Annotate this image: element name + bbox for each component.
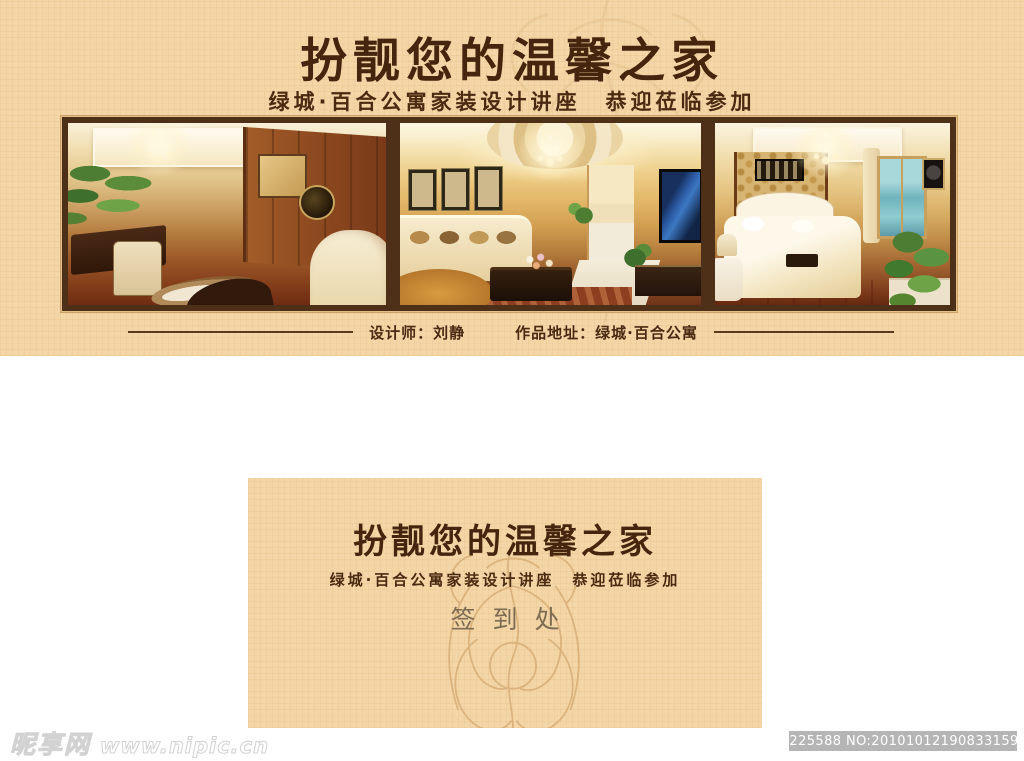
picture-frame xyxy=(475,167,502,211)
potted-plant xyxy=(872,225,950,305)
credit-location: 作品地址：绿城·百合公寓 xyxy=(515,322,698,343)
rule-left xyxy=(128,331,353,333)
banner-title: 扮靓您的温馨之家 xyxy=(0,22,1024,91)
chandelier-icon xyxy=(811,132,841,166)
floor-lamp-shade xyxy=(310,230,386,305)
banner-subtitle: 绿城·百合公寓家装设计讲座 恭迎莅临参加 xyxy=(0,86,1024,116)
desk-chair xyxy=(113,241,163,296)
flower-arrangement xyxy=(517,250,559,274)
photo-study-room xyxy=(68,123,386,305)
decorative-plate xyxy=(299,185,335,220)
promo-banner: 扮靓您的温馨之家 绿城·百合公寓家装设计讲座 恭迎莅临参加 xyxy=(0,0,1024,356)
photo-strip xyxy=(62,117,956,311)
signin-label: 签到处 xyxy=(248,600,762,636)
coffee-table xyxy=(490,270,571,301)
card-title: 扮靓您的温馨之家 xyxy=(248,514,762,563)
pillows xyxy=(739,212,828,236)
potted-plant xyxy=(566,199,602,232)
image-id-badge: ID:2225588 NO:20101012190833159000 xyxy=(789,731,1017,751)
canvas: 扮靓您的温馨之家 绿城·百合公寓家装设计讲座 恭迎莅临参加 xyxy=(0,0,1024,758)
nightstand xyxy=(715,258,743,302)
chandelier-icon xyxy=(144,130,174,164)
television-screen xyxy=(659,169,701,244)
credit-line: 设计师：刘静 作品地址：绿城·百合公寓 xyxy=(128,323,894,341)
photo-bedroom xyxy=(715,123,950,305)
nipic-url: www.nipic.cn xyxy=(100,734,269,758)
credit-designer: 设计师：刘静 xyxy=(369,322,465,343)
photo-living-room xyxy=(400,123,701,305)
signin-card: 扮靓您的温馨之家 绿城·百合公寓家装设计讲座 恭迎莅临参加 签到处 xyxy=(248,478,762,728)
sofa-cushions xyxy=(406,225,520,250)
wall-painting xyxy=(258,154,307,198)
picture-frame xyxy=(442,169,469,211)
breakfast-tray xyxy=(786,254,819,267)
rule-right xyxy=(714,331,894,333)
nipic-watermark: 昵享网 www.nipic.cn xyxy=(10,725,269,761)
picture-frame xyxy=(409,170,436,210)
round-wall-art xyxy=(922,158,946,191)
nipic-logo: 昵享网 xyxy=(10,725,91,761)
tv-cabinet xyxy=(635,265,701,296)
card-subtitle: 绿城·百合公寓家装设计讲座 恭迎莅临参加 xyxy=(248,569,762,590)
chandelier-icon xyxy=(535,134,565,168)
